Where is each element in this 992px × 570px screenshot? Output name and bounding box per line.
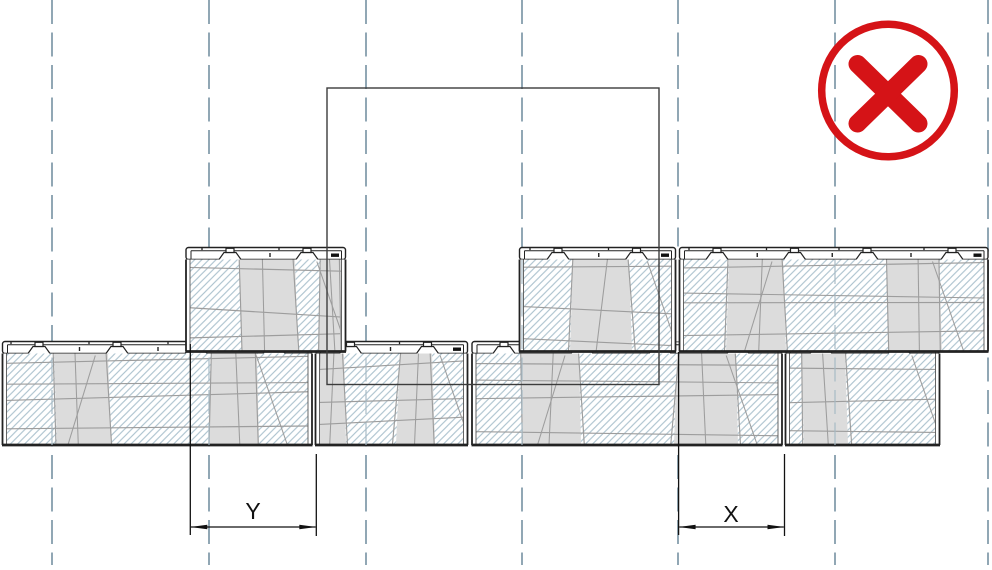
svg-text:X: X — [723, 501, 738, 527]
svg-text:Y: Y — [245, 498, 260, 524]
